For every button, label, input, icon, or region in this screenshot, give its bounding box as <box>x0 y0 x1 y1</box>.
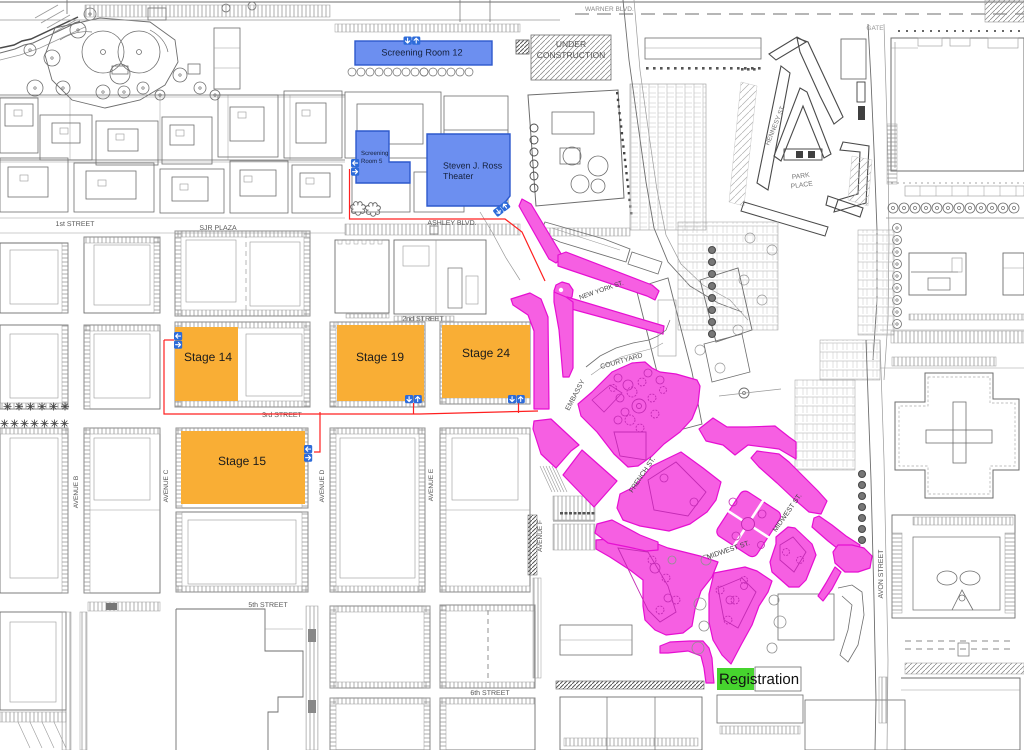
svg-text:CONSTRUCTION: CONSTRUCTION <box>537 50 605 60</box>
svg-text:AVENUE D: AVENUE D <box>319 469 326 502</box>
svg-text:AVON STREET: AVON STREET <box>878 549 885 599</box>
svg-text:6th STREET: 6th STREET <box>470 689 510 697</box>
svg-text:AVENUE C: AVENUE C <box>163 469 170 502</box>
svg-text:Registration: Registration <box>719 671 799 688</box>
svg-text:Stage 14: Stage 14 <box>184 350 232 364</box>
svg-text:Stage 15: Stage 15 <box>218 454 266 468</box>
svg-text:Screening Room 12: Screening Room 12 <box>381 48 462 58</box>
svg-text:AVENUE F: AVENUE F <box>537 520 544 552</box>
svg-text:Stage 19: Stage 19 <box>356 350 404 364</box>
svg-text:Screening: Screening <box>361 150 388 157</box>
svg-text:3rd STREET: 3rd STREET <box>262 411 302 419</box>
svg-text:1st STREET: 1st STREET <box>56 221 96 228</box>
svg-text:Room 5: Room 5 <box>361 158 383 165</box>
svg-text:ASHLEY BLVD.: ASHLEY BLVD. <box>427 220 476 227</box>
svg-text:Theater: Theater <box>443 171 473 181</box>
svg-text:AVENUE B: AVENUE B <box>73 476 80 508</box>
svg-text:AVENUE E: AVENUE E <box>428 468 435 501</box>
svg-text:Stage 24: Stage 24 <box>462 346 510 360</box>
svg-text:GATE: GATE <box>866 25 884 32</box>
svg-text:Steven J. Ross: Steven J. Ross <box>443 161 503 171</box>
svg-text:5th STREET: 5th STREET <box>248 601 288 609</box>
svg-text:WARNER BLVD.: WARNER BLVD. <box>585 6 634 13</box>
svg-text:UNDER: UNDER <box>556 39 586 49</box>
